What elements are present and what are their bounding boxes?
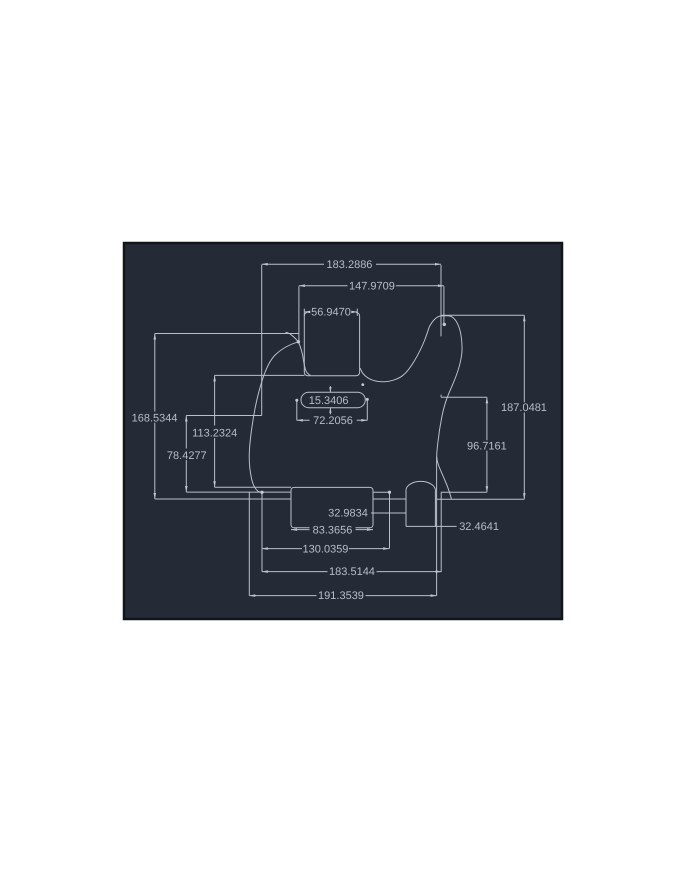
- svg-text:56.9470: 56.9470: [311, 307, 351, 319]
- svg-text:187.0481: 187.0481: [501, 402, 547, 414]
- svg-text:183.5144: 183.5144: [329, 566, 375, 578]
- svg-text:183.2886: 183.2886: [327, 259, 373, 271]
- svg-text:15.3406: 15.3406: [309, 395, 349, 407]
- svg-text:96.7161: 96.7161: [467, 440, 507, 452]
- svg-text:83.3656: 83.3656: [313, 524, 353, 536]
- svg-text:130.0359: 130.0359: [303, 543, 349, 555]
- svg-text:72.2056: 72.2056: [313, 415, 353, 427]
- svg-text:113.2324: 113.2324: [192, 427, 237, 439]
- svg-text:32.9834: 32.9834: [328, 508, 368, 520]
- svg-text:168.5344: 168.5344: [132, 412, 178, 424]
- svg-text:147.9709: 147.9709: [349, 281, 395, 293]
- svg-text:32.4641: 32.4641: [459, 521, 499, 533]
- svg-text:78.4277: 78.4277: [167, 450, 207, 462]
- svg-text:191.3539: 191.3539: [318, 590, 364, 602]
